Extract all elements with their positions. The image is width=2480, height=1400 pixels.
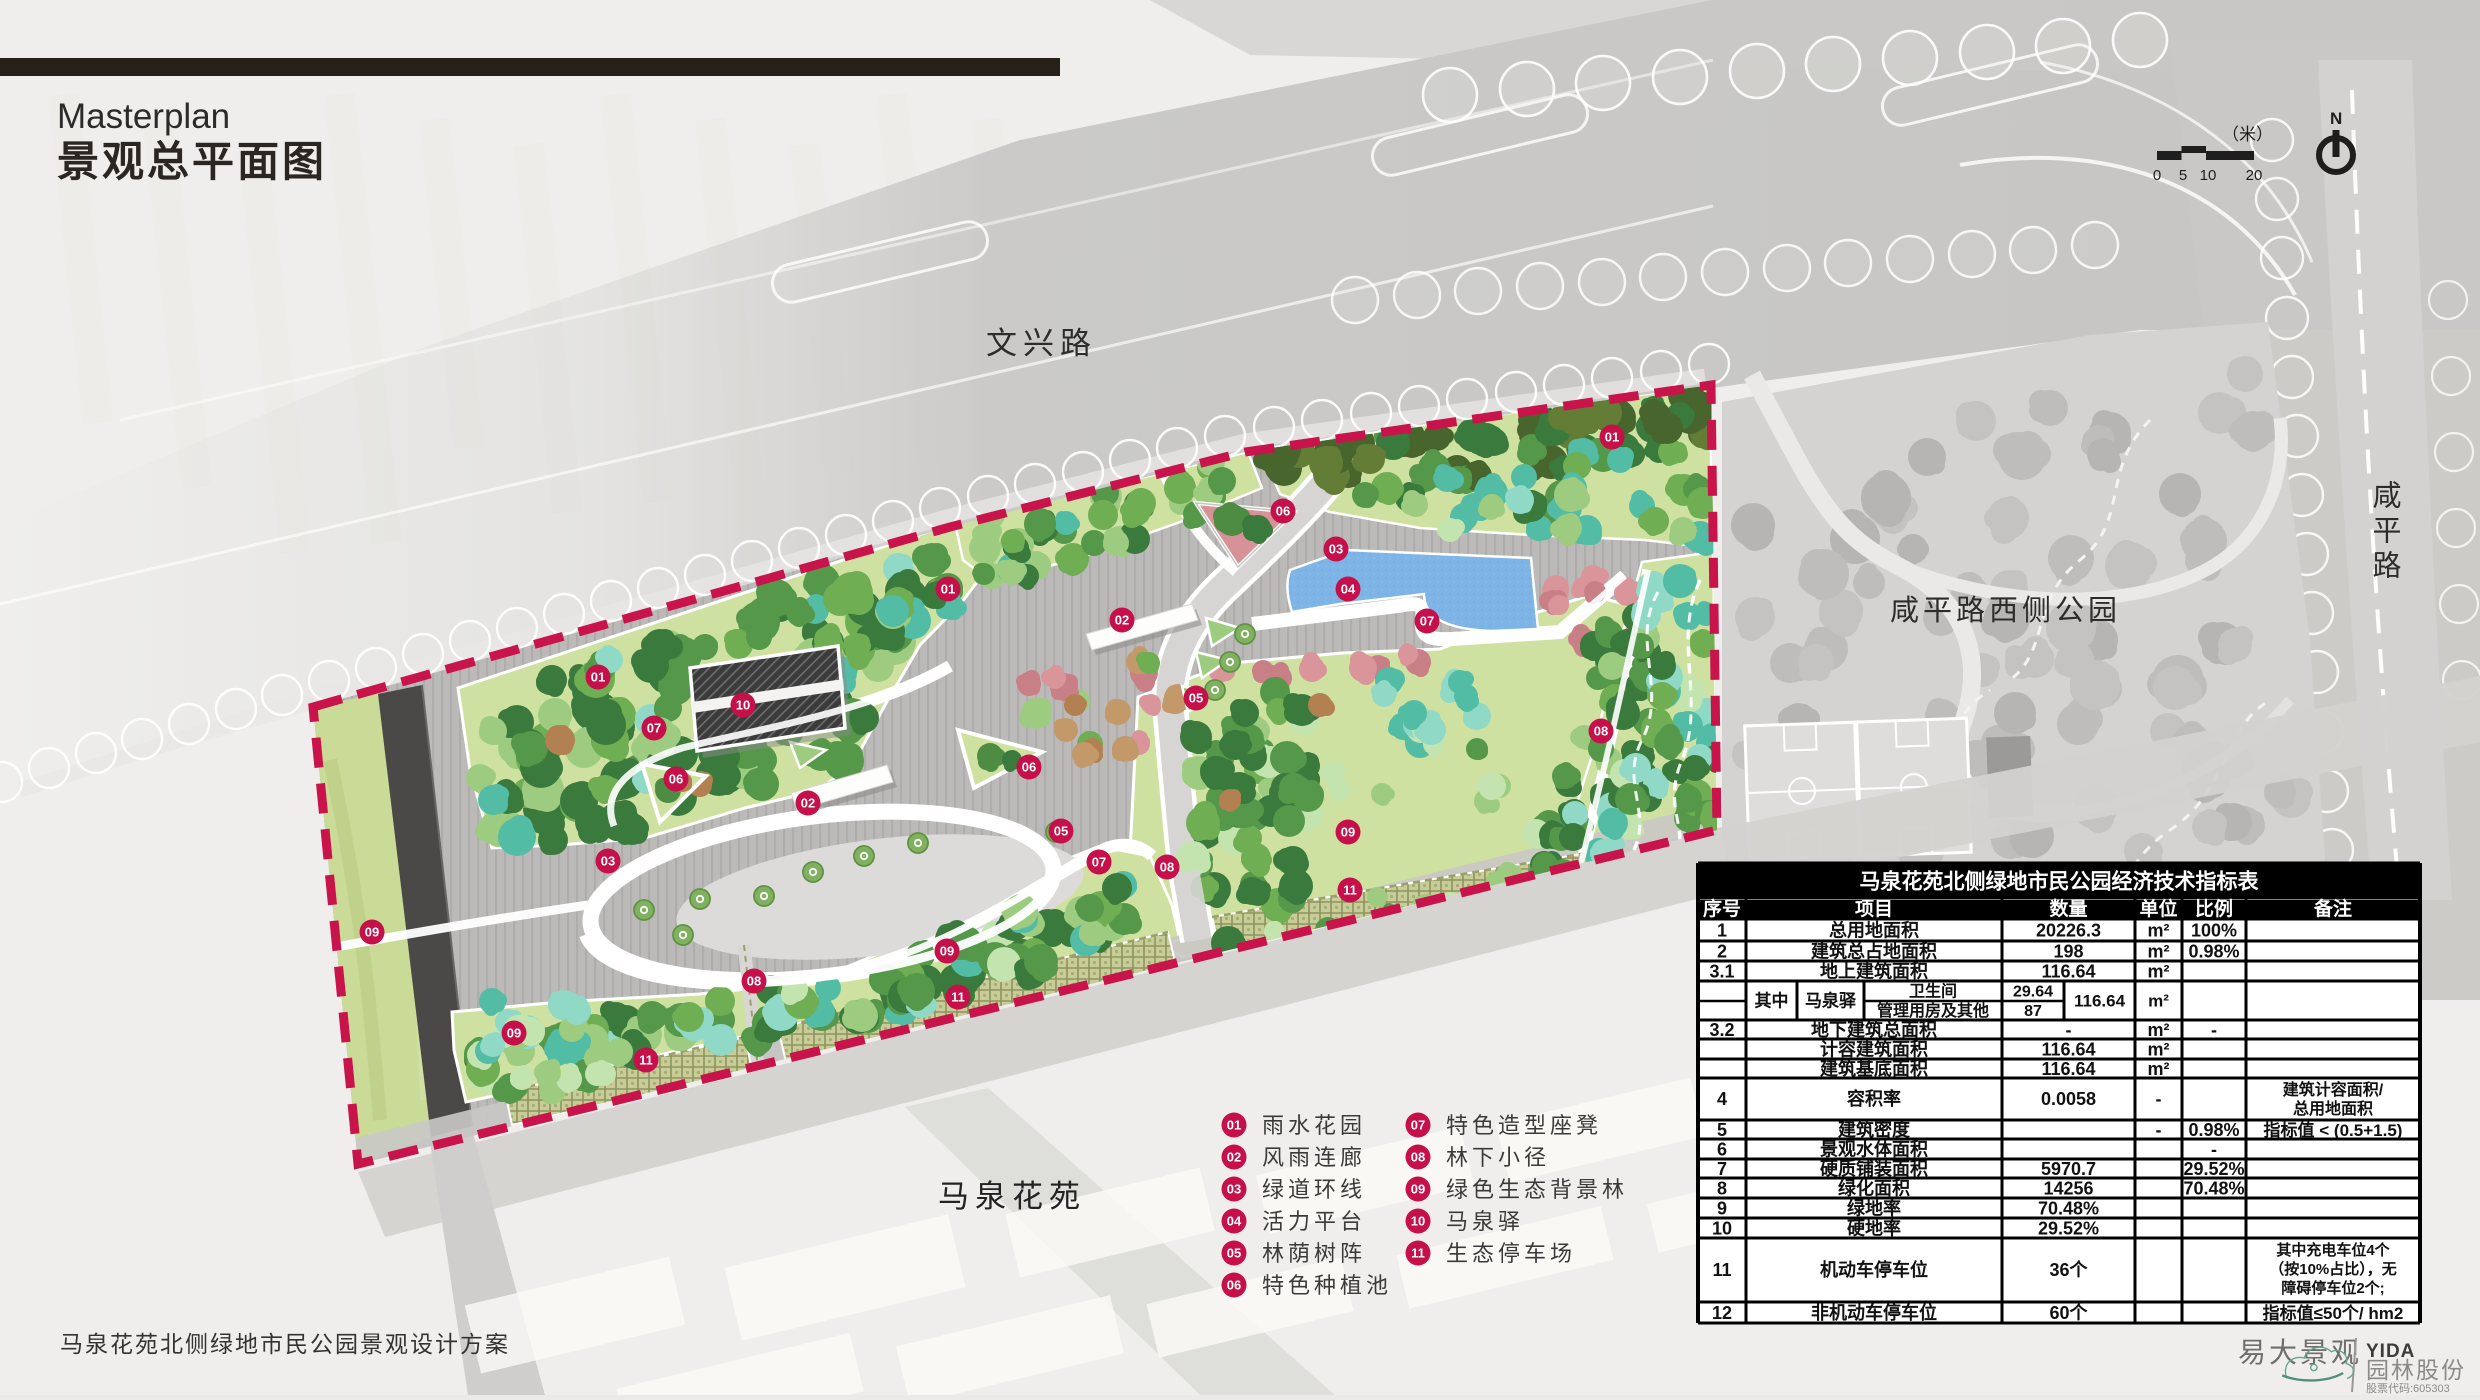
svg-text:02: 02: [1115, 613, 1129, 628]
svg-text:116.64: 116.64: [2041, 1059, 2095, 1079]
svg-text:（米）: （米）: [2222, 125, 2273, 144]
svg-text:容积率: 容积率: [1847, 1088, 1901, 1109]
svg-text:比例: 比例: [2195, 897, 2233, 920]
svg-text:绿色生态背景林: 绿色生态背景林: [1446, 1177, 1628, 1202]
svg-text:9: 9: [1717, 1199, 1727, 1219]
svg-text:0.0058: 0.0058: [2041, 1089, 2096, 1109]
svg-text:其中: 其中: [1755, 991, 1789, 1011]
svg-text:29.52%: 29.52%: [2038, 1219, 2099, 1239]
svg-text:6: 6: [1717, 1140, 1727, 1160]
svg-text:m²: m²: [2148, 1020, 2170, 1040]
svg-text:地上建筑面积: 地上建筑面积: [1820, 961, 1928, 982]
svg-text:29.64: 29.64: [2013, 984, 2053, 1001]
svg-text:马泉驿: 马泉驿: [1446, 1209, 1524, 1234]
svg-text:0: 0: [2153, 167, 2161, 184]
svg-text:10: 10: [2200, 167, 2217, 184]
svg-text:活力平台: 活力平台: [1262, 1209, 1366, 1234]
svg-text:园林股份: 园林股份: [2366, 1357, 2466, 1383]
svg-text:N: N: [2330, 109, 2342, 128]
svg-text:04: 04: [1341, 582, 1356, 597]
svg-text:建筑计容面积/: 建筑计容面积/: [2283, 1080, 2384, 1099]
svg-text:m²: m²: [2148, 962, 2170, 982]
svg-text:5: 5: [2179, 167, 2187, 184]
svg-text:0.98%: 0.98%: [2188, 1120, 2239, 1140]
svg-text:03: 03: [1329, 542, 1343, 557]
svg-text:10: 10: [1712, 1219, 1732, 1239]
svg-text:雨水花园: 雨水花园: [1262, 1113, 1366, 1138]
svg-text:3.2: 3.2: [1709, 1020, 1734, 1040]
svg-text:07: 07: [1420, 614, 1434, 629]
svg-text:06: 06: [1276, 504, 1290, 519]
svg-text:林下小径: 林下小径: [1446, 1145, 1550, 1170]
svg-text:绿化面积: 绿化面积: [1838, 1178, 1910, 1199]
svg-text:指标值≤50个/ hm2: 指标值≤50个/ hm2: [2263, 1303, 2404, 1323]
svg-text:3.1: 3.1: [1709, 962, 1734, 982]
svg-text:116.64: 116.64: [2041, 1040, 2095, 1060]
svg-text:2: 2: [1717, 942, 1727, 962]
svg-text:07: 07: [1092, 855, 1106, 870]
svg-text:-: -: [2156, 1089, 2162, 1109]
svg-text:04: 04: [1227, 1214, 1242, 1229]
svg-text:08: 08: [1160, 860, 1174, 875]
svg-text:非机动车停车位: 非机动车停车位: [1811, 1302, 1937, 1323]
svg-text:87: 87: [2024, 1003, 2042, 1020]
svg-text:单位: 单位: [2139, 897, 2177, 920]
svg-text:70.48%: 70.48%: [2038, 1199, 2099, 1219]
svg-text:70.48%: 70.48%: [2183, 1179, 2244, 1199]
svg-text:06: 06: [1227, 1278, 1241, 1293]
svg-text:11: 11: [1712, 1260, 1731, 1280]
svg-text:序号: 序号: [1703, 897, 1741, 920]
svg-text:Masterplan: Masterplan: [57, 97, 230, 136]
svg-text:11: 11: [639, 1053, 653, 1068]
svg-text:29.52%: 29.52%: [2183, 1159, 2244, 1179]
svg-text:02: 02: [1227, 1150, 1241, 1165]
svg-text:景观总平面图: 景观总平面图: [57, 138, 327, 185]
svg-text:116.64: 116.64: [2041, 962, 2095, 982]
svg-text:备注: 备注: [2313, 897, 2352, 920]
svg-text:马泉花苑: 马泉花苑: [938, 1179, 1086, 1214]
svg-text:5970.7: 5970.7: [2041, 1159, 2096, 1179]
svg-text:建筑基底面积: 建筑基底面积: [1820, 1058, 1928, 1079]
svg-text:m²: m²: [2148, 942, 2170, 962]
svg-text:-: -: [2211, 1140, 2217, 1160]
svg-text:12: 12: [1712, 1303, 1732, 1323]
svg-text:06: 06: [1022, 760, 1036, 775]
svg-text:11: 11: [1411, 1246, 1425, 1261]
svg-text:绿道环线: 绿道环线: [1262, 1177, 1366, 1202]
svg-text:林荫树阵: 林荫树阵: [1262, 1241, 1366, 1266]
svg-text:198: 198: [2053, 942, 2083, 962]
svg-text:09: 09: [365, 925, 379, 940]
svg-text:0.98%: 0.98%: [2188, 942, 2239, 962]
svg-text:02: 02: [801, 796, 815, 811]
svg-text:06: 06: [669, 772, 683, 787]
svg-text:08: 08: [1594, 724, 1608, 739]
svg-text:11: 11: [951, 990, 965, 1005]
svg-text:08: 08: [1411, 1150, 1425, 1165]
svg-text:特色造型座凳: 特色造型座凳: [1446, 1113, 1602, 1138]
svg-text:m²: m²: [2148, 1059, 2170, 1079]
svg-text:-: -: [2211, 1020, 2217, 1040]
svg-text:01: 01: [591, 670, 605, 685]
svg-text:卫生间: 卫生间: [1909, 982, 1957, 1001]
svg-text:20: 20: [2246, 167, 2263, 184]
svg-text:03: 03: [1227, 1182, 1241, 1197]
svg-text:7: 7: [1717, 1159, 1727, 1179]
svg-text:总用地面积: 总用地面积: [2293, 1099, 2373, 1118]
svg-text:36个: 36个: [2049, 1259, 2088, 1280]
svg-text:m²: m²: [2148, 992, 2169, 1011]
svg-text:-: -: [2156, 1120, 2162, 1140]
svg-text:建筑密度: 建筑密度: [1838, 1119, 1911, 1140]
svg-text:07: 07: [1411, 1118, 1425, 1133]
svg-text:马泉驿: 马泉驿: [1805, 991, 1857, 1011]
svg-text:机动车停车位: 机动车停车位: [1820, 1259, 1928, 1280]
svg-text:60个: 60个: [2049, 1302, 2088, 1323]
svg-text:景观水体面积: 景观水体面积: [1820, 1139, 1928, 1160]
svg-text:风雨连廊: 风雨连廊: [1262, 1145, 1366, 1170]
svg-text:地下建筑总面积: 地下建筑总面积: [1811, 1019, 1937, 1040]
svg-text:09: 09: [1341, 825, 1355, 840]
svg-text:100%: 100%: [2191, 921, 2237, 941]
svg-text:1: 1: [1717, 921, 1727, 941]
svg-text:05: 05: [1227, 1246, 1241, 1261]
svg-text:01: 01: [1227, 1118, 1241, 1133]
svg-text:绿地率: 绿地率: [1847, 1198, 1901, 1219]
svg-text:项目: 项目: [1855, 898, 1893, 920]
svg-text:管理用房及其他: 管理用房及其他: [1877, 1001, 1989, 1020]
svg-text:01: 01: [941, 582, 955, 597]
svg-text:20226.3: 20226.3: [2036, 921, 2101, 941]
svg-text:马泉花苑北侧绿地市民公园经济技术指标表: 马泉花苑北侧绿地市民公园经济技术指标表: [1860, 870, 2260, 894]
svg-text:计容建筑面积: 计容建筑面积: [1820, 1039, 1928, 1060]
svg-text:生态停车场: 生态停车场: [1446, 1241, 1576, 1266]
svg-text:8: 8: [1717, 1179, 1727, 1199]
svg-text:09: 09: [1411, 1182, 1425, 1197]
svg-text:09: 09: [940, 944, 954, 959]
svg-text:05: 05: [1054, 824, 1068, 839]
svg-text:其中充电车位4个: 其中充电车位4个: [2276, 1241, 2390, 1259]
svg-text:10: 10: [1411, 1214, 1425, 1229]
svg-text:特色种植池: 特色种植池: [1262, 1273, 1392, 1298]
svg-text:马泉花苑北侧绿地市民公园景观设计方案: 马泉花苑北侧绿地市民公园景观设计方案: [60, 1331, 510, 1357]
svg-text:14256: 14256: [2043, 1179, 2093, 1199]
svg-text:股票代码:605303: 股票代码:605303: [2366, 1382, 2450, 1395]
svg-text:-: -: [2066, 1020, 2072, 1040]
svg-text:5: 5: [1717, 1120, 1727, 1140]
svg-text:01: 01: [1605, 430, 1619, 445]
svg-text:m²: m²: [2148, 921, 2170, 941]
svg-text:4: 4: [1717, 1089, 1727, 1109]
svg-text:文兴路: 文兴路: [986, 326, 1097, 361]
svg-text:03: 03: [601, 854, 615, 869]
svg-text:（按10%占比），无: （按10%占比），无: [2269, 1260, 2397, 1278]
svg-text:05: 05: [1189, 691, 1203, 706]
svg-text:07: 07: [647, 721, 661, 736]
svg-text:建筑总占地面积: 建筑总占地面积: [1811, 941, 1937, 962]
svg-text:116.64: 116.64: [2074, 992, 2126, 1011]
svg-text:09: 09: [507, 1026, 521, 1041]
svg-text:硬质铺装面积: 硬质铺装面积: [1820, 1158, 1928, 1179]
svg-text:指标值 < (0.5+1.5): 指标值 < (0.5+1.5): [2264, 1120, 2403, 1140]
svg-text:08: 08: [747, 974, 761, 989]
svg-text:障碍停车位2个;: 障碍停车位2个;: [2281, 1279, 2384, 1297]
svg-text:数量: 数量: [2049, 897, 2087, 920]
svg-text:咸平路西侧公园: 咸平路西侧公园: [1890, 594, 2121, 627]
svg-text:11: 11: [1343, 883, 1357, 898]
svg-text:硬地率: 硬地率: [1847, 1218, 1901, 1239]
svg-text:总用地面积: 总用地面积: [1829, 920, 1919, 941]
svg-text:m²: m²: [2148, 1040, 2170, 1060]
svg-text:咸平路: 咸平路: [2368, 480, 2402, 585]
svg-text:10: 10: [736, 698, 750, 713]
